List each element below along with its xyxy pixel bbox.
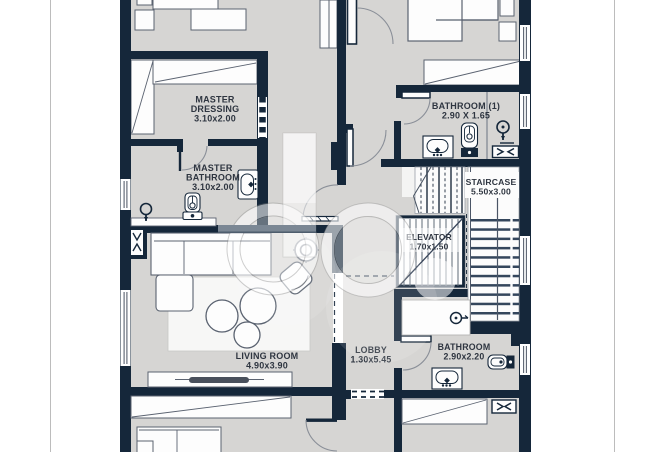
svg-text:BATHROOM (1)2.90 X 1.65: BATHROOM (1)2.90 X 1.65 — [432, 101, 500, 121]
svg-text:BATHROOM2.90x2.20: BATHROOM2.90x2.20 — [438, 342, 491, 362]
svg-text:STAIRCASE5.50x3.00: STAIRCASE5.50x3.00 — [466, 177, 517, 197]
svg-text:MASTERBATHROOM3.10x2.00: MASTERBATHROOM3.10x2.00 — [186, 163, 240, 192]
svg-text:MASTERDRESSING3.10x2.00: MASTERDRESSING3.10x2.00 — [191, 95, 240, 124]
